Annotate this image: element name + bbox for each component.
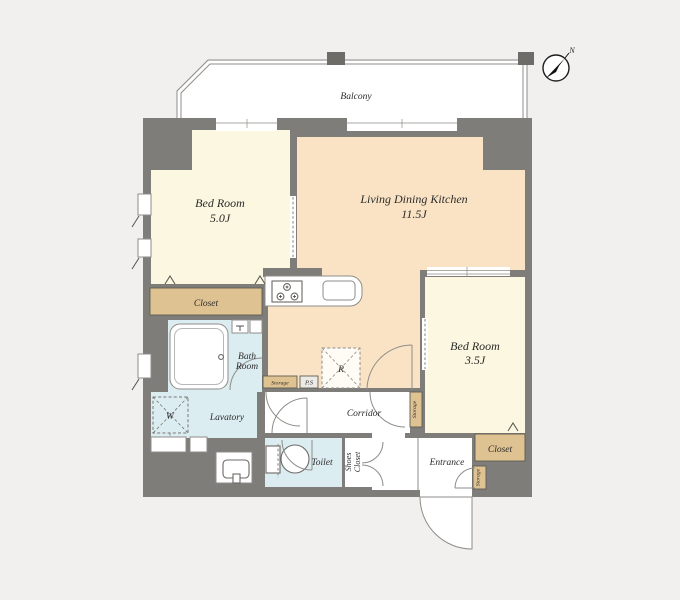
lavatory-label: Lavatory xyxy=(209,413,245,423)
hall-storage-label: Storage xyxy=(271,381,289,387)
bedroom2-label: Bed Room xyxy=(450,339,500,353)
closet1-label: Closet xyxy=(194,299,219,309)
window-mark xyxy=(132,258,139,269)
balcony-post xyxy=(518,52,534,65)
balcony-floor xyxy=(177,61,527,118)
refrigerator-label: R xyxy=(337,365,344,375)
side-window xyxy=(138,239,151,257)
kitchen-counter xyxy=(265,276,362,306)
lavatory-cabinet xyxy=(151,437,186,452)
window-mark xyxy=(132,216,139,227)
front-door-swing xyxy=(420,497,472,549)
compass-north-label: N xyxy=(568,46,575,55)
entrance-label: Entrance xyxy=(429,458,465,468)
lavatory-cabinet xyxy=(190,437,207,452)
compass-icon: N xyxy=(543,46,575,81)
bath-window xyxy=(138,354,151,378)
bathroom-label-2: Room xyxy=(235,362,258,372)
ldk-area: 11.5J xyxy=(401,207,427,221)
window-mark xyxy=(132,379,139,390)
bedroom1-window xyxy=(216,118,277,131)
balcony: Balcony xyxy=(177,52,534,118)
hall-passage-floor xyxy=(372,433,405,490)
shoes-closet-label-1: Shoes xyxy=(344,453,353,472)
bathtub-drain xyxy=(219,355,224,360)
bedroom2-sliding-opening xyxy=(427,267,510,276)
bedroom2-storage-label: Storage xyxy=(412,400,418,418)
bathroom-label-1: Bath xyxy=(238,352,256,362)
pipe-space-label: P.S xyxy=(304,380,314,387)
closet2-label: Closet xyxy=(488,445,513,455)
shoes-closet-label-2: Closet xyxy=(353,451,362,472)
ldk-label: Living Dining Kitchen xyxy=(359,192,467,206)
washer-label: W xyxy=(166,412,175,422)
toilet-label: Toilet xyxy=(311,458,333,468)
sink-icon xyxy=(323,281,355,300)
bedroom2-area: 3.5J xyxy=(464,353,486,367)
floor-plan-drawing: Balcony N xyxy=(0,0,680,600)
basin-tap-icon xyxy=(233,474,240,483)
balcony-label: Balcony xyxy=(340,92,372,102)
entrance-doorway xyxy=(420,490,472,497)
bath-vanity xyxy=(250,320,262,333)
corridor-label: Corridor xyxy=(347,409,382,419)
bedroom1-label: Bed Room xyxy=(195,196,245,210)
bedroom1-area: 5.0J xyxy=(210,211,231,225)
balcony-post xyxy=(327,52,345,65)
floor-plan-page: Balcony N xyxy=(0,0,680,600)
corridor-floor xyxy=(265,392,410,433)
side-window xyxy=(138,194,151,215)
entrance-storage-label: Storage xyxy=(476,468,482,486)
